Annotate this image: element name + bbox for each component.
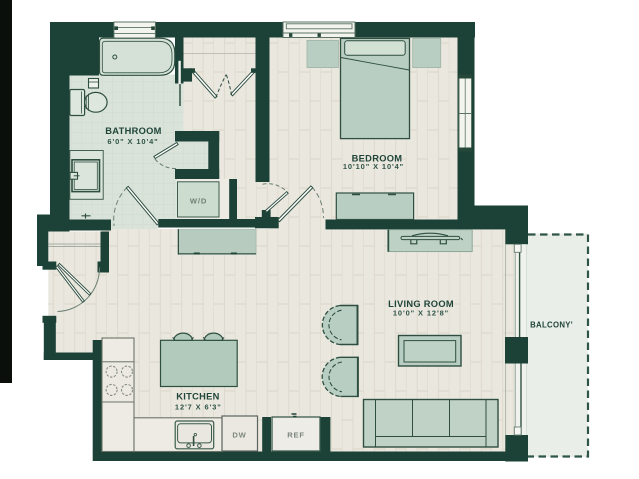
svg-text:W/D: W/D	[190, 196, 207, 205]
svg-text:10'10" X 10'4": 10'10" X 10'4"	[343, 162, 404, 171]
svg-text:REF: REF	[287, 431, 305, 440]
svg-text:10'0" X 12'8": 10'0" X 12'8"	[393, 309, 449, 318]
svg-text:BALCONY': BALCONY'	[530, 321, 573, 330]
svg-text:BATHROOM: BATHROOM	[105, 126, 161, 136]
svg-text:12'7 X 6'3": 12'7 X 6'3"	[175, 402, 222, 411]
svg-text:LIVING ROOM: LIVING ROOM	[388, 299, 454, 309]
svg-text:DW: DW	[232, 431, 246, 440]
svg-text:6'0" X 10'4": 6'0" X 10'4"	[107, 137, 158, 146]
svg-text:KITCHEN: KITCHEN	[176, 392, 219, 402]
